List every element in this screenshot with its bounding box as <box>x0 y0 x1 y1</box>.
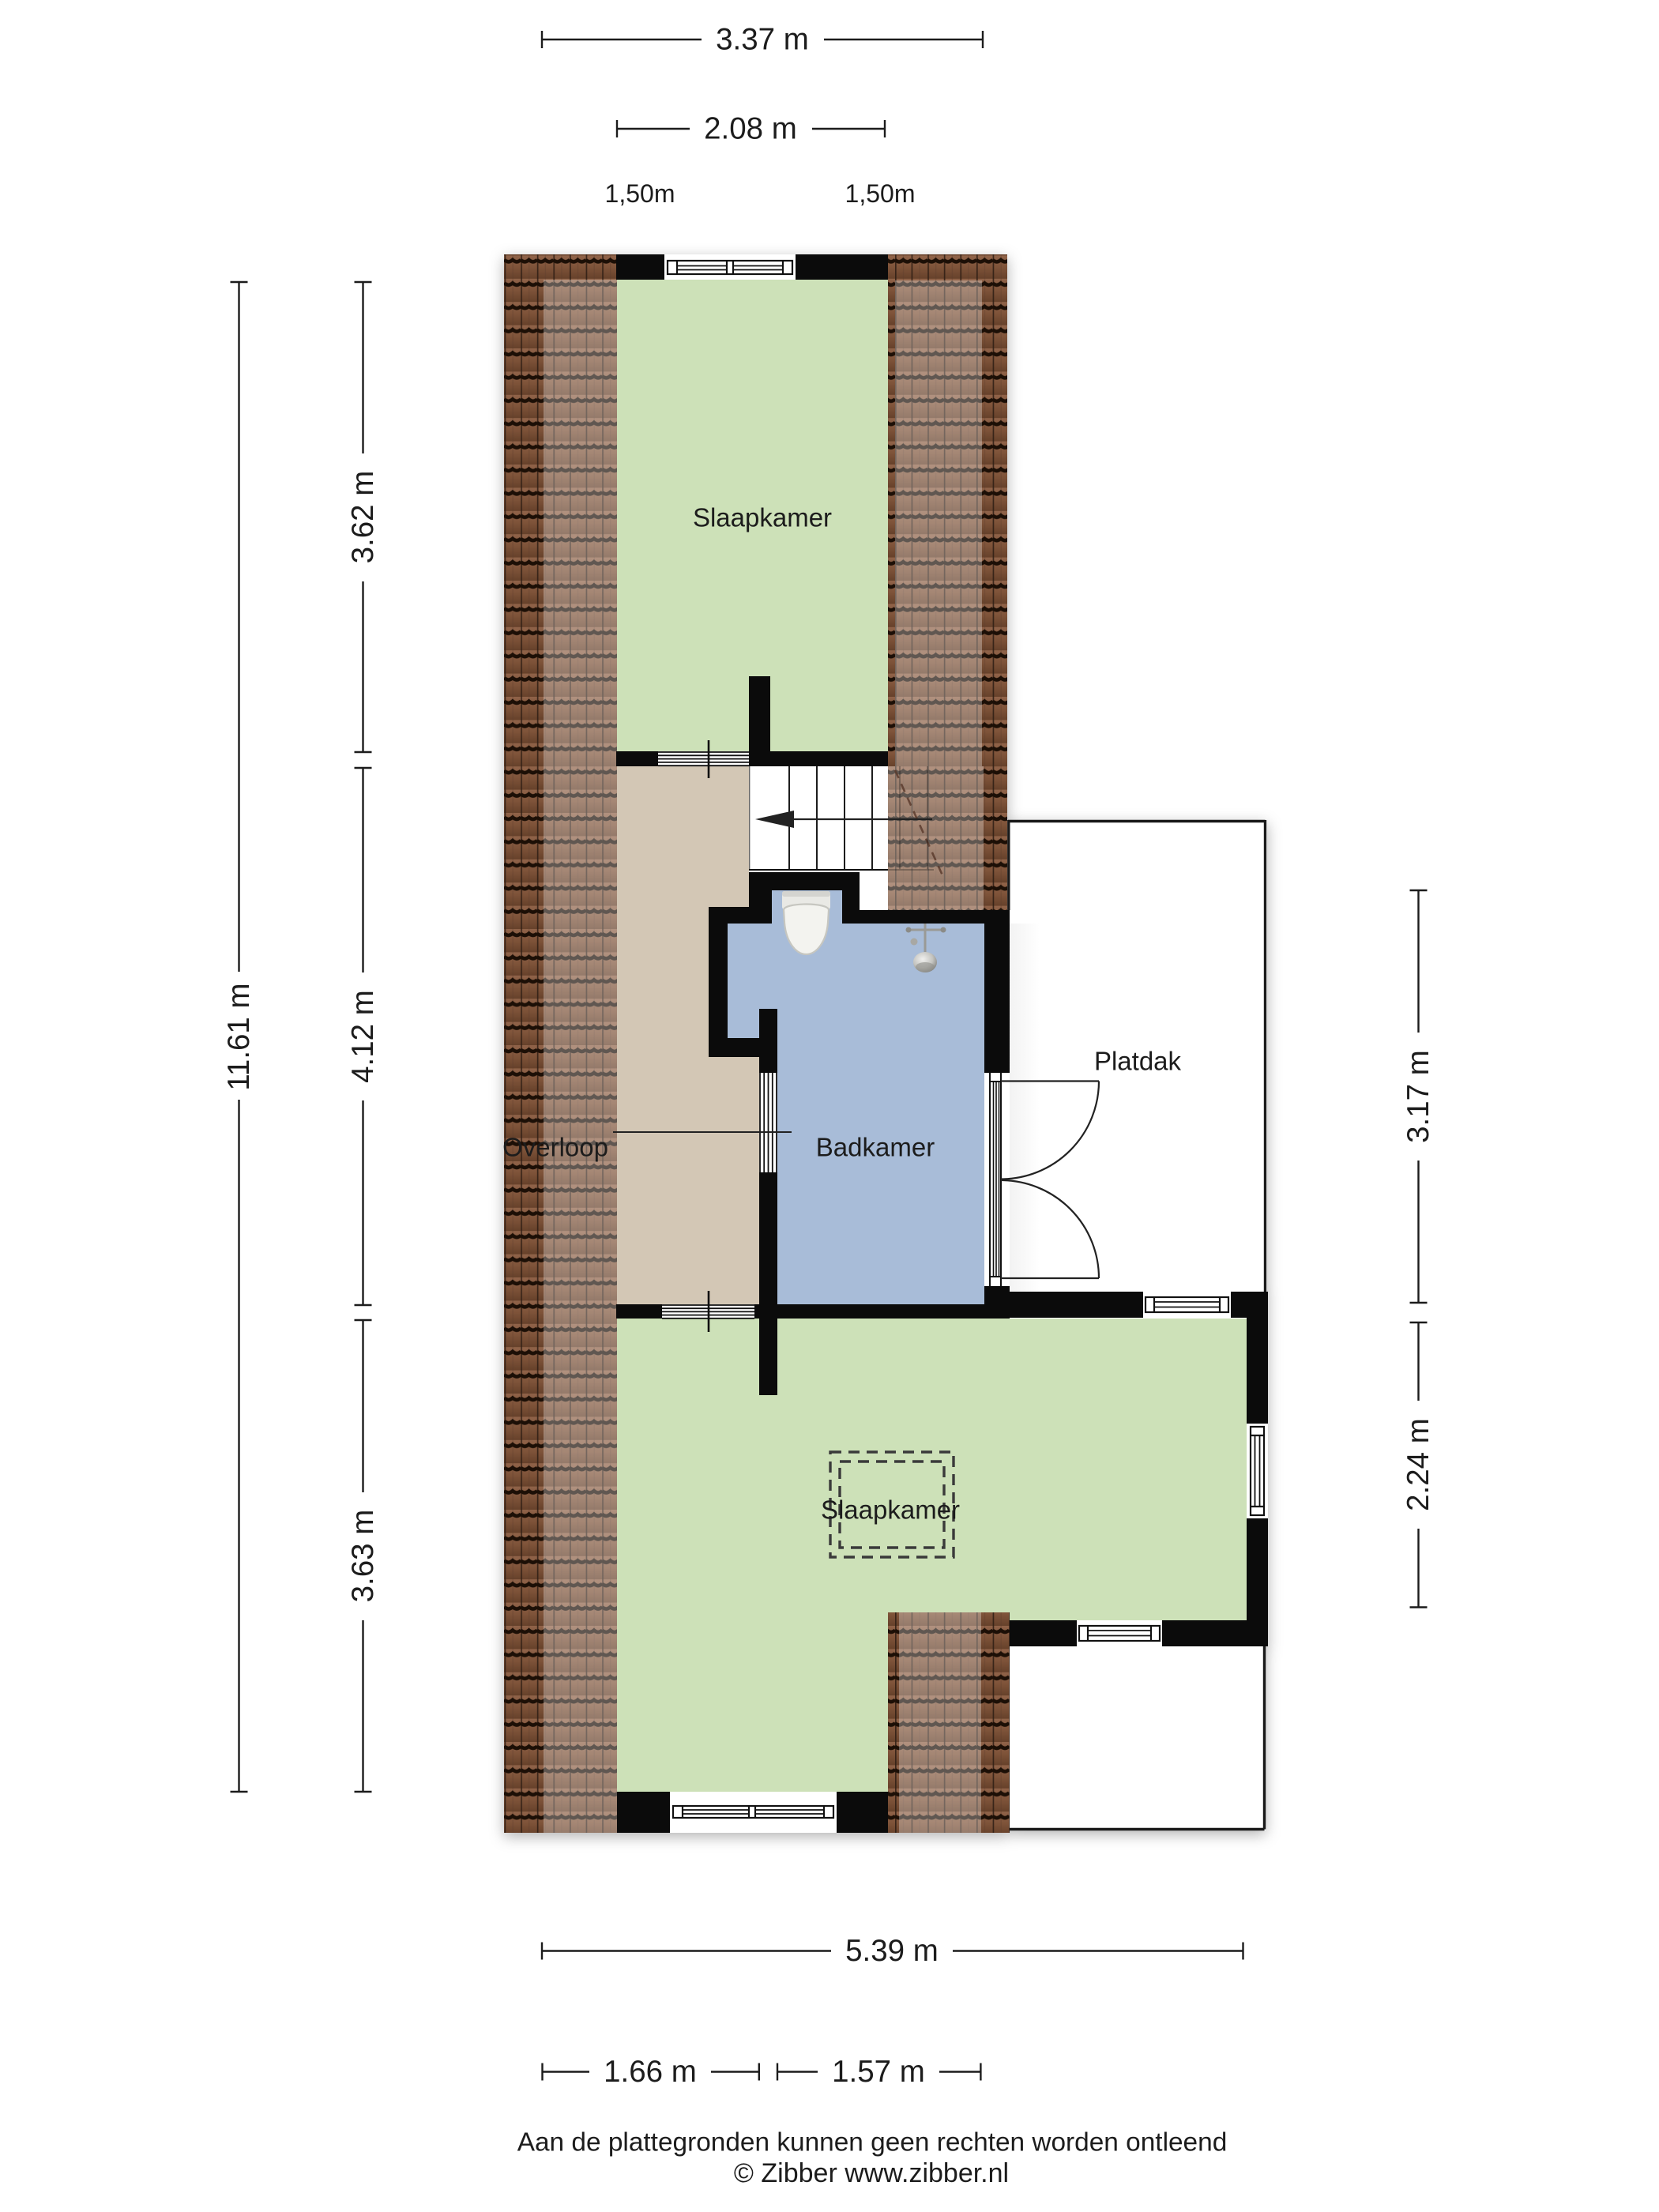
svg-text:Platdak: Platdak <box>1094 1047 1182 1076</box>
svg-text:Slaapkamer: Slaapkamer <box>821 1495 960 1525</box>
svg-text:1,50m: 1,50m <box>605 179 675 208</box>
svg-text:1,50m: 1,50m <box>845 179 916 208</box>
svg-text:1.66 m: 1.66 m <box>604 2055 697 2089</box>
svg-text:© Zibber www.zibber.nl: © Zibber www.zibber.nl <box>734 2158 1009 2188</box>
svg-text:5.39 m: 5.39 m <box>845 1934 939 1968</box>
svg-text:2.24 m: 2.24 m <box>1401 1418 1435 1511</box>
svg-text:3.17 m: 3.17 m <box>1401 1050 1435 1143</box>
svg-text:Overloop: Overloop <box>502 1133 608 1162</box>
svg-text:3.63 m: 3.63 m <box>346 1510 380 1603</box>
svg-text:4.12 m: 4.12 m <box>346 990 380 1083</box>
svg-text:Slaapkamer: Slaapkamer <box>693 503 832 532</box>
svg-text:1.57 m: 1.57 m <box>832 2055 925 2089</box>
svg-text:3.37 m: 3.37 m <box>716 23 809 57</box>
svg-text:11.61 m: 11.61 m <box>222 983 256 1090</box>
svg-text:Aan de plattegronden kunnen ge: Aan de plattegronden kunnen geen rechten… <box>517 2128 1228 2157</box>
svg-text:2.08 m: 2.08 m <box>704 112 797 146</box>
svg-text:Badkamer: Badkamer <box>816 1133 935 1162</box>
svg-text:3.62 m: 3.62 m <box>346 471 380 564</box>
